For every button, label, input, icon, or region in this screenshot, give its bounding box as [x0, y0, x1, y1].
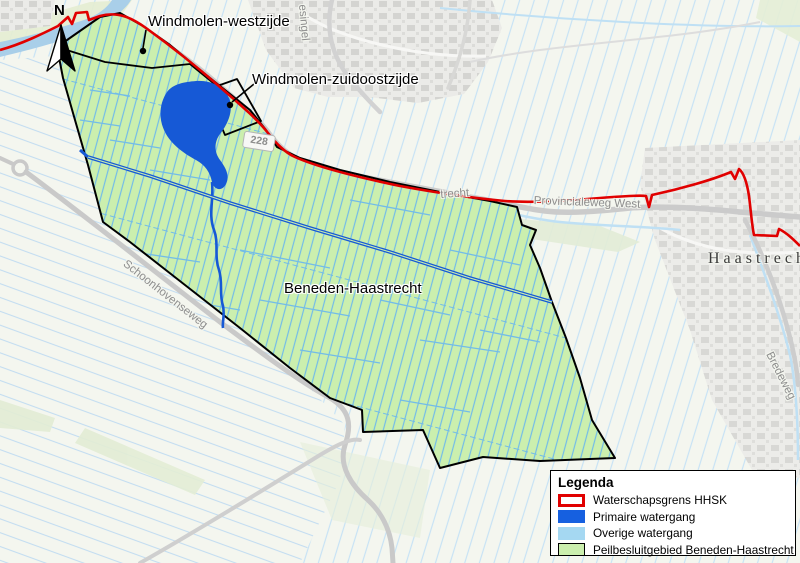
legend-swatch-primaire-watergang — [558, 510, 585, 523]
north-label: N — [54, 2, 65, 19]
legend-swatch-overige-watergang — [558, 527, 585, 540]
legend-swatch-waterschapsgrens — [558, 494, 585, 507]
legend-swatch-peilbesluitgebied — [558, 543, 585, 556]
legend-item-peilbesluitgebied: Peilbesluitgebied Beneden-Haastrecht — [558, 543, 788, 557]
windmolen-west-dot — [140, 48, 146, 54]
label-windmolen-westzijde: Windmolen-westzijde — [148, 13, 290, 30]
legend-item-waterschapsgrens: Waterschapsgrens HHSK — [558, 493, 788, 507]
legend: Legenda Waterschapsgrens HHSK Primaire w… — [550, 470, 796, 556]
legend-item-primaire-watergang: Primaire watergang — [558, 510, 788, 524]
map-canvas: N Windmolen-westzijde Windmolen-zuidoost… — [0, 0, 800, 563]
legend-item-overige-watergang: Overige watergang — [558, 526, 788, 540]
label-trecht: trecht — [440, 187, 470, 201]
label-windmolen-zuidoostzijde: Windmolen-zuidoostzijde — [252, 71, 419, 88]
label-beneden-haastrecht: Beneden-Haastrecht — [284, 280, 422, 297]
windmolen-zuidoost-dot — [227, 102, 233, 108]
label-haastrecht: Haastrecht — [708, 250, 800, 268]
legend-title: Legenda — [558, 475, 788, 490]
